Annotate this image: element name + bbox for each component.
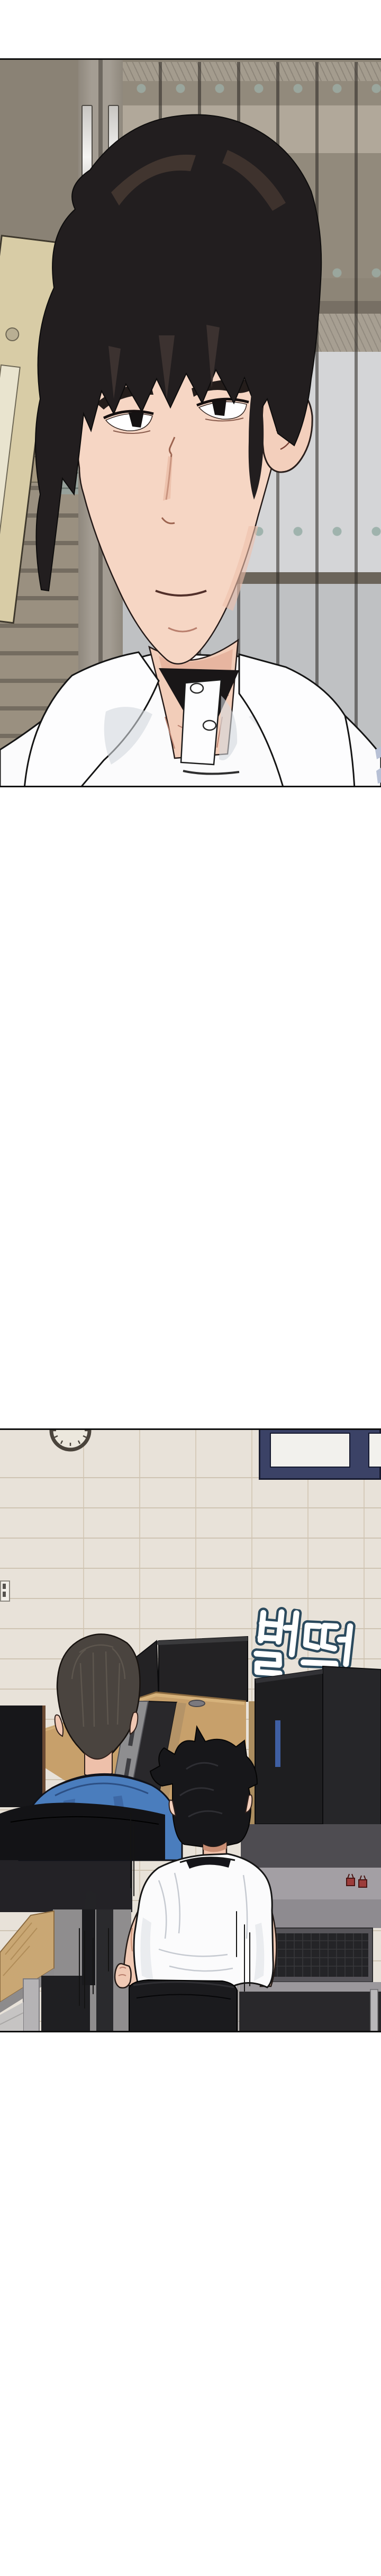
computer-room-scene	[0, 1430, 381, 2032]
comic-panel-1	[0, 58, 381, 787]
webtoon-strip: 벌떡	[0, 0, 381, 2576]
man-black-hair-white-polo	[0, 60, 381, 787]
comic-panel-2: 벌떡	[0, 1428, 381, 2032]
office-chair-left	[0, 1706, 46, 1807]
watermark-logo-partial	[372, 747, 381, 787]
